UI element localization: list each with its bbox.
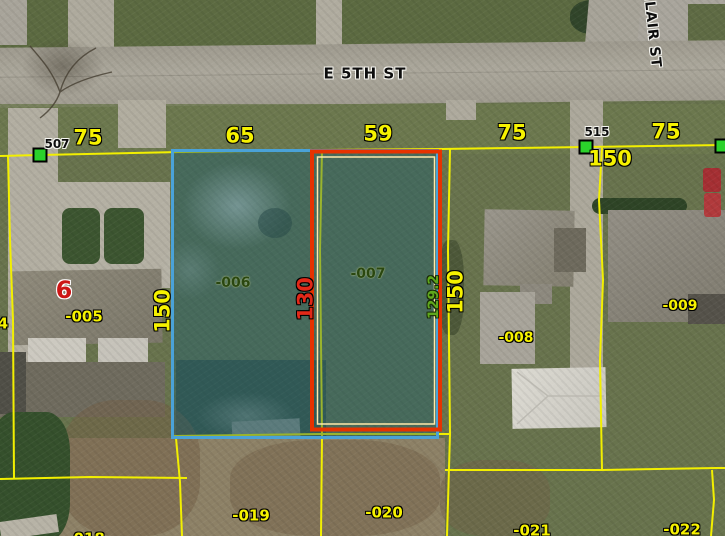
dim-depth-150-right: 150 xyxy=(446,270,467,314)
shed-ridges xyxy=(517,372,604,424)
address-label-507: 507 xyxy=(44,138,69,150)
dim-frontage-4: 75 xyxy=(497,123,526,144)
tree-branches xyxy=(30,46,112,118)
parcel-label-004: 4 xyxy=(0,317,8,332)
dim-frontage-5: 75 xyxy=(651,122,680,143)
map-viewport[interactable]: E 5TH ST CLAIR ST 507 515 75 65 59 75 75… xyxy=(0,0,725,536)
dim-frontage-2: 65 xyxy=(225,126,254,147)
parcel-label-007: -007 xyxy=(350,267,385,281)
parcel-line-west-vertical xyxy=(8,156,14,478)
street-label-e5th: E 5TH ST xyxy=(324,67,407,82)
parcel-label-019: -019 xyxy=(232,509,270,524)
parcel-label-009: -009 xyxy=(662,299,697,313)
dim-depth-150-horizontal: 150 xyxy=(588,149,632,170)
parcel-line-west-horizontal xyxy=(0,477,187,479)
parcel-label-008: -008 xyxy=(498,331,533,345)
parcel-label-020: -020 xyxy=(365,506,403,521)
address-label-515: 515 xyxy=(584,126,609,138)
dim-depth-130: 130 xyxy=(296,277,317,321)
parcel-line-south-horizontal xyxy=(445,468,725,470)
parcel-label-006: -006 xyxy=(215,276,250,290)
dim-depth-129-2: 129.2 xyxy=(427,275,441,319)
parcel-line-008-east xyxy=(599,148,603,470)
block-number: 6 xyxy=(56,278,73,302)
dim-frontage-3: 59 xyxy=(363,124,392,145)
dim-depth-150-left: 150 xyxy=(153,289,174,333)
parcel-line-007-east xyxy=(447,149,450,536)
parcel-label-021: -021 xyxy=(513,524,551,536)
parcel-label-022: -022 xyxy=(663,523,701,536)
parcel-line-019-west xyxy=(176,438,182,536)
parcel-line-southeast-vertical xyxy=(711,470,714,536)
address-marker-east[interactable] xyxy=(716,140,725,153)
parcel-label-018: -018 xyxy=(67,532,105,536)
parcel-label-005: -005 xyxy=(65,310,103,325)
dim-frontage-1: 75 xyxy=(73,128,102,149)
